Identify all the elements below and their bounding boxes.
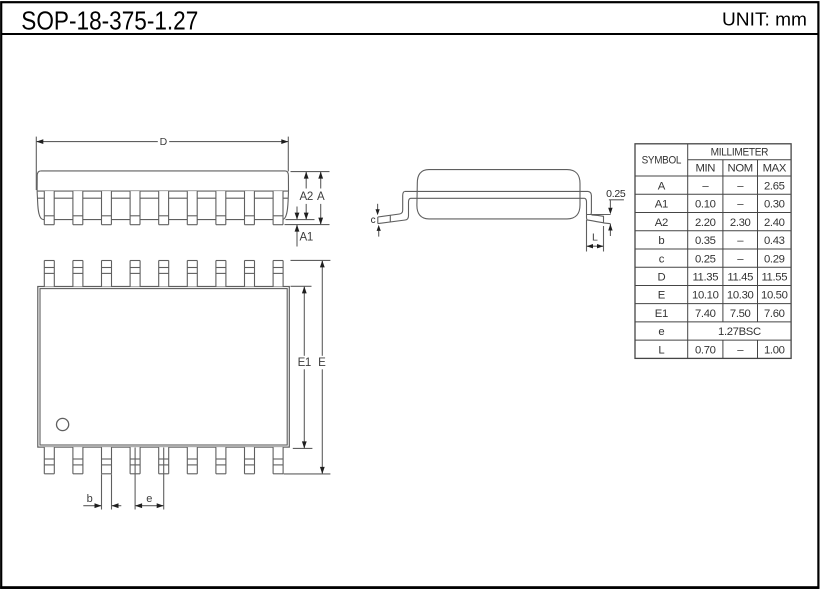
svg-text:SYMBOL: SYMBOL [642, 155, 682, 167]
svg-text:c: c [371, 215, 376, 226]
svg-text:2.20: 2.20 [695, 217, 716, 229]
svg-text:11.35: 11.35 [692, 272, 718, 284]
svg-text:0.25: 0.25 [695, 253, 716, 265]
svg-text:c: c [659, 253, 665, 265]
svg-text:b: b [658, 235, 664, 247]
svg-text:e: e [146, 493, 152, 505]
svg-text:SOP-18-375-1.27: SOP-18-375-1.27 [21, 8, 198, 36]
svg-text:11.45: 11.45 [727, 272, 753, 284]
svg-text:E1: E1 [298, 357, 311, 369]
svg-text:A: A [317, 191, 325, 203]
svg-text:0.70: 0.70 [695, 344, 716, 356]
svg-text:E: E [658, 290, 666, 302]
svg-text:10.50: 10.50 [761, 290, 788, 302]
svg-text:0.29: 0.29 [764, 253, 785, 265]
svg-text:NOM: NOM [728, 163, 753, 175]
svg-text:11.55: 11.55 [761, 272, 787, 284]
svg-text:7.60: 7.60 [764, 308, 785, 320]
svg-text:1.00: 1.00 [764, 344, 785, 356]
svg-text:0.25: 0.25 [606, 188, 626, 200]
svg-text:MIN: MIN [695, 163, 715, 175]
svg-text:10.30: 10.30 [727, 290, 754, 302]
svg-text:UNIT: mm: UNIT: mm [722, 8, 807, 29]
svg-text:L: L [658, 344, 664, 356]
svg-text:D: D [657, 272, 665, 284]
svg-text:L: L [592, 232, 598, 244]
svg-text:7.50: 7.50 [730, 308, 751, 320]
svg-text:0.35: 0.35 [695, 235, 716, 247]
svg-text:10.10: 10.10 [692, 290, 719, 302]
svg-text:A2: A2 [655, 217, 668, 229]
svg-text:A1: A1 [300, 231, 313, 243]
svg-text:MILLIMETER: MILLIMETER [711, 147, 769, 159]
svg-text:E: E [318, 357, 326, 369]
svg-text:MAX: MAX [763, 163, 787, 175]
svg-text:b: b [87, 493, 93, 505]
svg-text:A1: A1 [655, 199, 668, 211]
svg-text:0.43: 0.43 [764, 235, 785, 247]
svg-text:1.27BSC: 1.27BSC [718, 326, 761, 338]
svg-text:E1: E1 [655, 308, 668, 320]
svg-text:0.30: 0.30 [764, 199, 785, 211]
svg-text:0.10: 0.10 [695, 199, 716, 211]
svg-text:2.65: 2.65 [764, 180, 785, 192]
svg-text:A: A [658, 180, 666, 192]
svg-text:2.30: 2.30 [730, 217, 751, 229]
svg-text:A2: A2 [299, 191, 312, 203]
svg-text:e: e [658, 326, 664, 338]
svg-text:D: D [160, 136, 168, 148]
svg-text:7.40: 7.40 [695, 308, 716, 320]
svg-text:2.40: 2.40 [764, 217, 785, 229]
